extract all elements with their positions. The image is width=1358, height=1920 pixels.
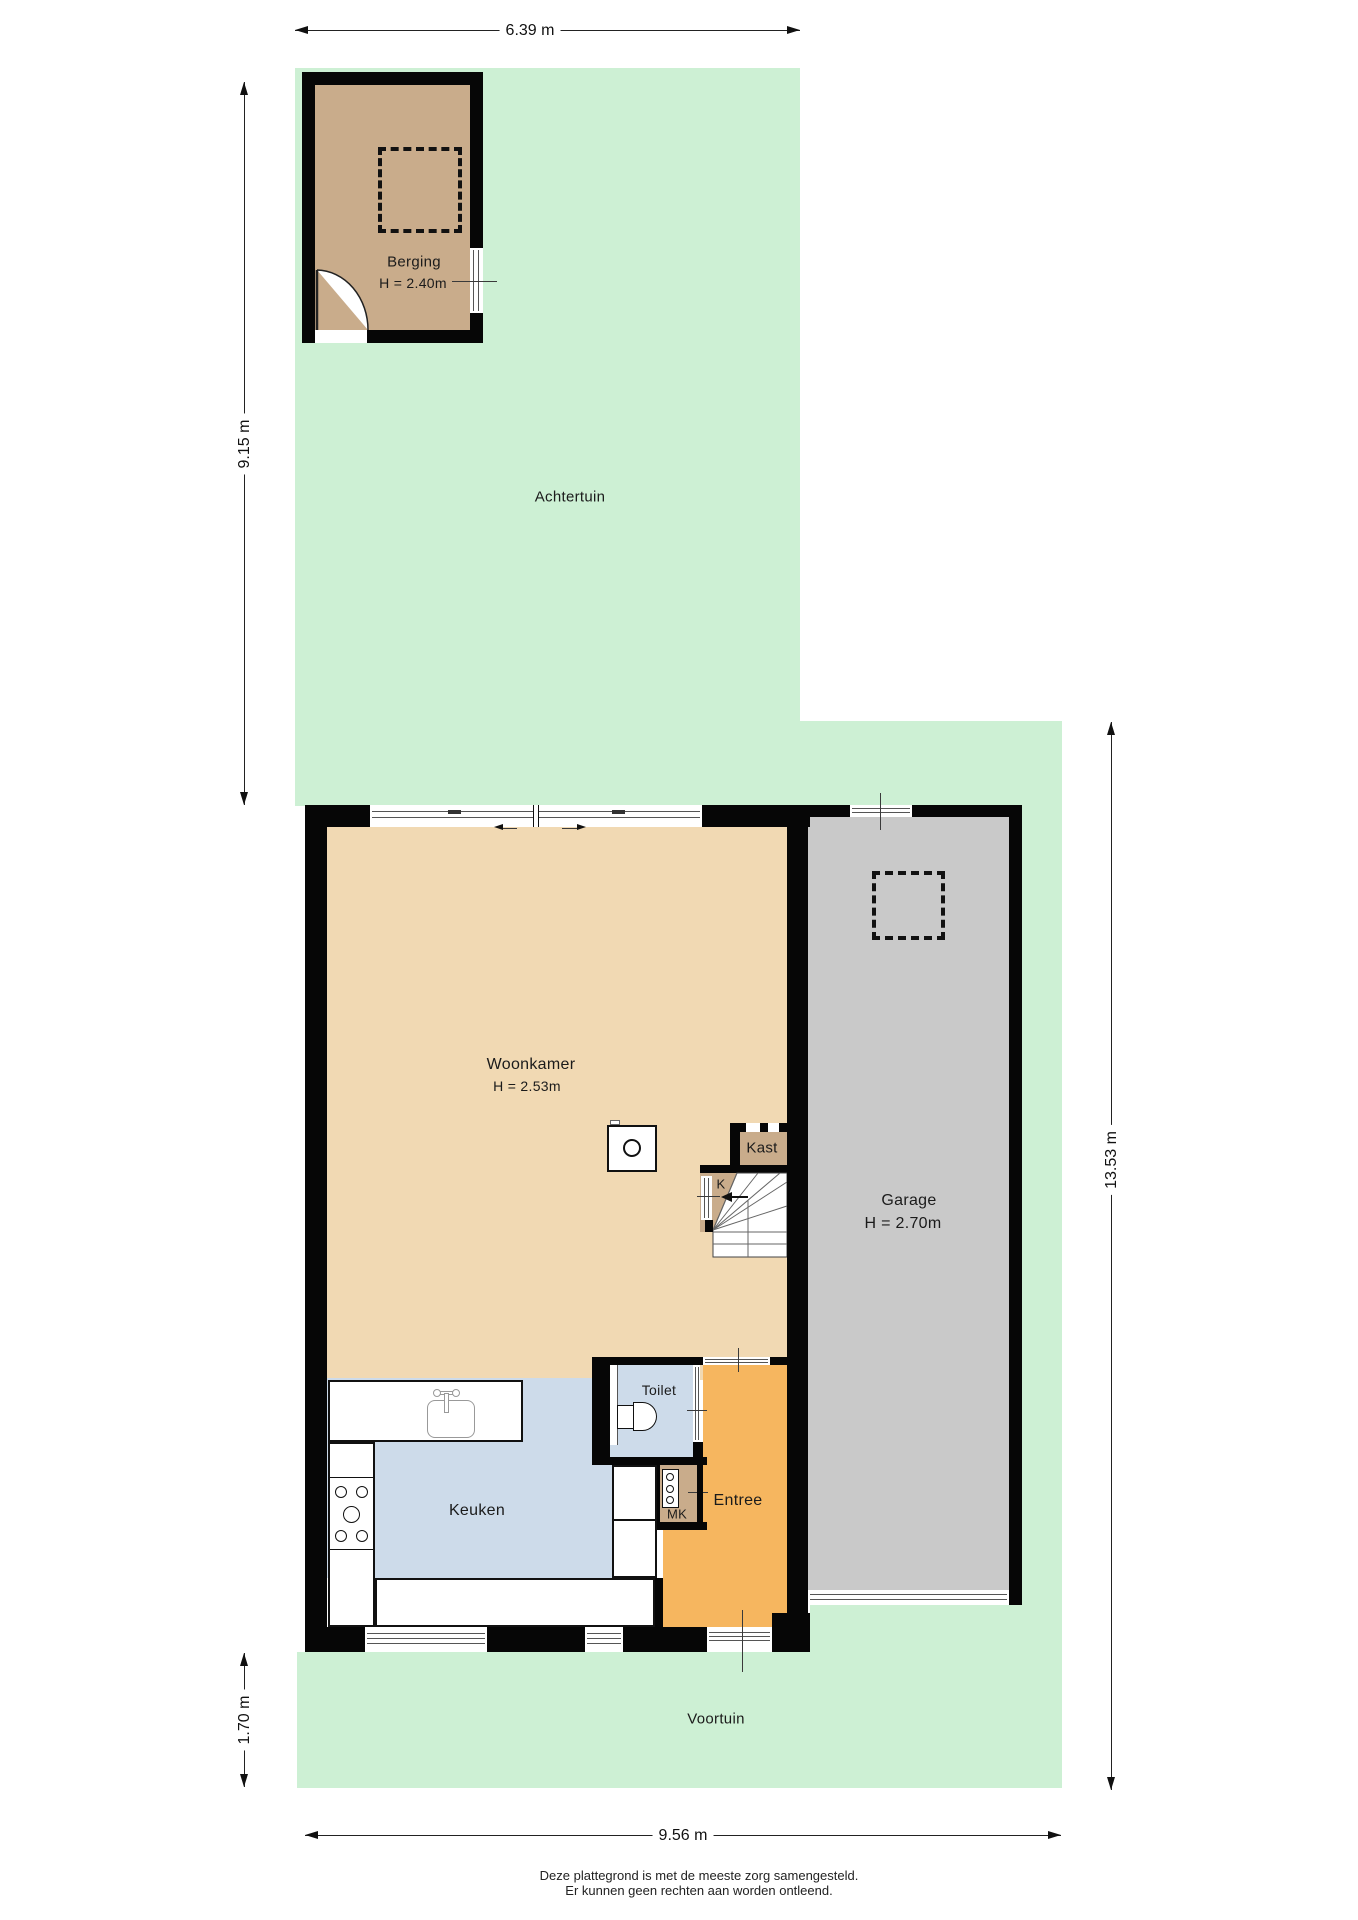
sliding-door-mullion xyxy=(533,805,539,827)
meter-dial-1 xyxy=(666,1473,674,1481)
berging-wall-top xyxy=(302,72,483,85)
kast-label: Kast xyxy=(746,1140,777,1157)
sliding-door-panel-tick-right xyxy=(612,810,625,814)
entree-label: Entree xyxy=(714,1492,763,1510)
mk-label: MK xyxy=(667,1507,687,1522)
dim-left-lower-arrow-bottom xyxy=(240,1774,248,1787)
footer-line-2: Er kunnen geen rechten aan worden ontlee… xyxy=(540,1883,859,1898)
kitchen-faucet-knob-left xyxy=(433,1389,441,1397)
keuken-label: Keuken xyxy=(449,1502,505,1520)
dim-top-arrow-left xyxy=(295,26,308,34)
dim-right-arrow-top xyxy=(1107,722,1115,735)
toilet-wall-bottom xyxy=(592,1457,707,1465)
kitchen-counter-top xyxy=(328,1380,523,1442)
garage-label: Garage xyxy=(881,1192,936,1210)
front-door-leader xyxy=(742,1610,743,1672)
woonkamer-height-label: H = 2.53m xyxy=(493,1078,561,1094)
berging-label: Berging xyxy=(387,254,441,271)
kitchen-cabinet-right xyxy=(612,1465,657,1578)
garden-strip-right-of-garage xyxy=(1022,806,1062,1605)
footer-disclaimer: Deze plattegrond is met de meeste zorg s… xyxy=(540,1868,859,1898)
keuken-entree-wall xyxy=(655,1578,663,1630)
garage-window-leader xyxy=(880,793,881,830)
garage-wall-top-left xyxy=(808,805,850,817)
k-label: K xyxy=(717,1177,726,1192)
window-keuken-left xyxy=(365,1627,487,1652)
dim-bottom-label: 9.56 m xyxy=(653,1826,714,1846)
house-wall-bottom-2 xyxy=(487,1627,585,1652)
mk-wall-right xyxy=(697,1442,703,1530)
stove-burner-center xyxy=(343,1506,360,1523)
slide-arrow-left-line xyxy=(501,828,517,829)
kitchen-faucet-stem xyxy=(444,1393,449,1413)
dim-left-upper-arrow-bottom xyxy=(240,792,248,805)
passage-leader xyxy=(738,1348,739,1372)
house-wall-bottom-4 xyxy=(772,1613,810,1652)
toilet-leader xyxy=(687,1410,707,1411)
stove-burner-1 xyxy=(335,1486,347,1498)
stove-burner-2 xyxy=(356,1486,368,1498)
meter-dial-3 xyxy=(666,1496,674,1504)
garage-height-label: H = 2.70m xyxy=(865,1215,942,1233)
berging-wall-left xyxy=(302,72,315,343)
woonkamer-floor xyxy=(327,827,787,1380)
garage-roof-window-dashed xyxy=(872,871,945,940)
slide-arrow-right-line xyxy=(562,828,578,829)
window-keuken-right xyxy=(585,1627,623,1652)
fireplace-circle xyxy=(623,1139,641,1157)
toilet-glass-partition xyxy=(693,1365,700,1442)
garage-door xyxy=(808,1590,1009,1605)
dim-bottom-arrow-left xyxy=(305,1831,318,1839)
toilet-label: Toilet xyxy=(642,1382,676,1398)
berging-wall-right-upper xyxy=(470,72,483,248)
kitchen-sink xyxy=(427,1400,475,1438)
stove-burner-4 xyxy=(356,1530,368,1542)
meter-dial-2 xyxy=(666,1485,674,1493)
house-wall-bottom-3 xyxy=(623,1627,707,1652)
dim-right-arrow-bottom xyxy=(1107,1777,1115,1790)
berging-roof-window-dashed xyxy=(378,147,462,233)
dim-right-line xyxy=(1111,722,1112,1790)
toilet-fixture-tank xyxy=(617,1405,634,1429)
dim-left-upper-arrow-top xyxy=(240,82,248,95)
garage-wall-top-right xyxy=(912,805,1009,817)
toilet-wall-left xyxy=(592,1357,610,1465)
house-wall-left xyxy=(305,805,327,1652)
berging-wall-right-lower xyxy=(470,313,483,343)
dim-top-label: 6.39 m xyxy=(500,21,561,41)
voortuin-label: Voortuin xyxy=(687,1711,744,1728)
sliding-door-panel-tick-left xyxy=(448,810,461,814)
k-leader xyxy=(697,1196,720,1197)
footer-line-1: Deze plattegrond is met de meeste zorg s… xyxy=(540,1868,859,1883)
house-wall-right xyxy=(787,805,808,1652)
front-door xyxy=(707,1627,772,1652)
entree-passage-threshold xyxy=(703,1357,770,1365)
kitchen-faucet-knob-right xyxy=(452,1389,460,1397)
house-wall-top-left xyxy=(305,805,370,827)
entree-floor-lower xyxy=(663,1530,703,1630)
achtertuin-label: Achtertuin xyxy=(535,489,606,506)
kitchen-counter-bottom xyxy=(375,1578,655,1627)
house-wall-bottom-1 xyxy=(305,1627,365,1652)
dim-left-lower-arrow-top xyxy=(240,1653,248,1666)
slide-arrow-right-head xyxy=(577,824,586,830)
garage-wall-right xyxy=(1009,805,1022,1605)
kitchen-cabinet-divider xyxy=(612,1519,657,1521)
dim-left-lower-label: 1.70 m xyxy=(235,1690,255,1751)
berging-height-leader xyxy=(452,281,497,282)
berging-height-label: H = 2.40m xyxy=(379,275,447,291)
dim-right-label: 13.53 m xyxy=(1102,1125,1122,1195)
woonkamer-label: Woonkamer xyxy=(487,1056,576,1074)
dim-bottom-arrow-right xyxy=(1048,1831,1061,1839)
dim-left-upper-label: 9.15 m xyxy=(235,414,255,475)
voortuin-area xyxy=(297,1652,1062,1788)
achtertuin-right-extension xyxy=(800,721,1062,806)
stairs-corner-wall xyxy=(705,1220,713,1232)
slide-arrow-left-head xyxy=(494,824,503,830)
berging-door-swing xyxy=(315,268,369,332)
passage-wall-stub xyxy=(770,1357,787,1365)
floor-plan: Achtertuin Voortuin Berging H = 2.40m Wo… xyxy=(0,0,1358,1920)
fireplace-flue-tick xyxy=(610,1120,620,1125)
dim-top-arrow-right xyxy=(787,26,800,34)
stove-burner-3 xyxy=(335,1530,347,1542)
